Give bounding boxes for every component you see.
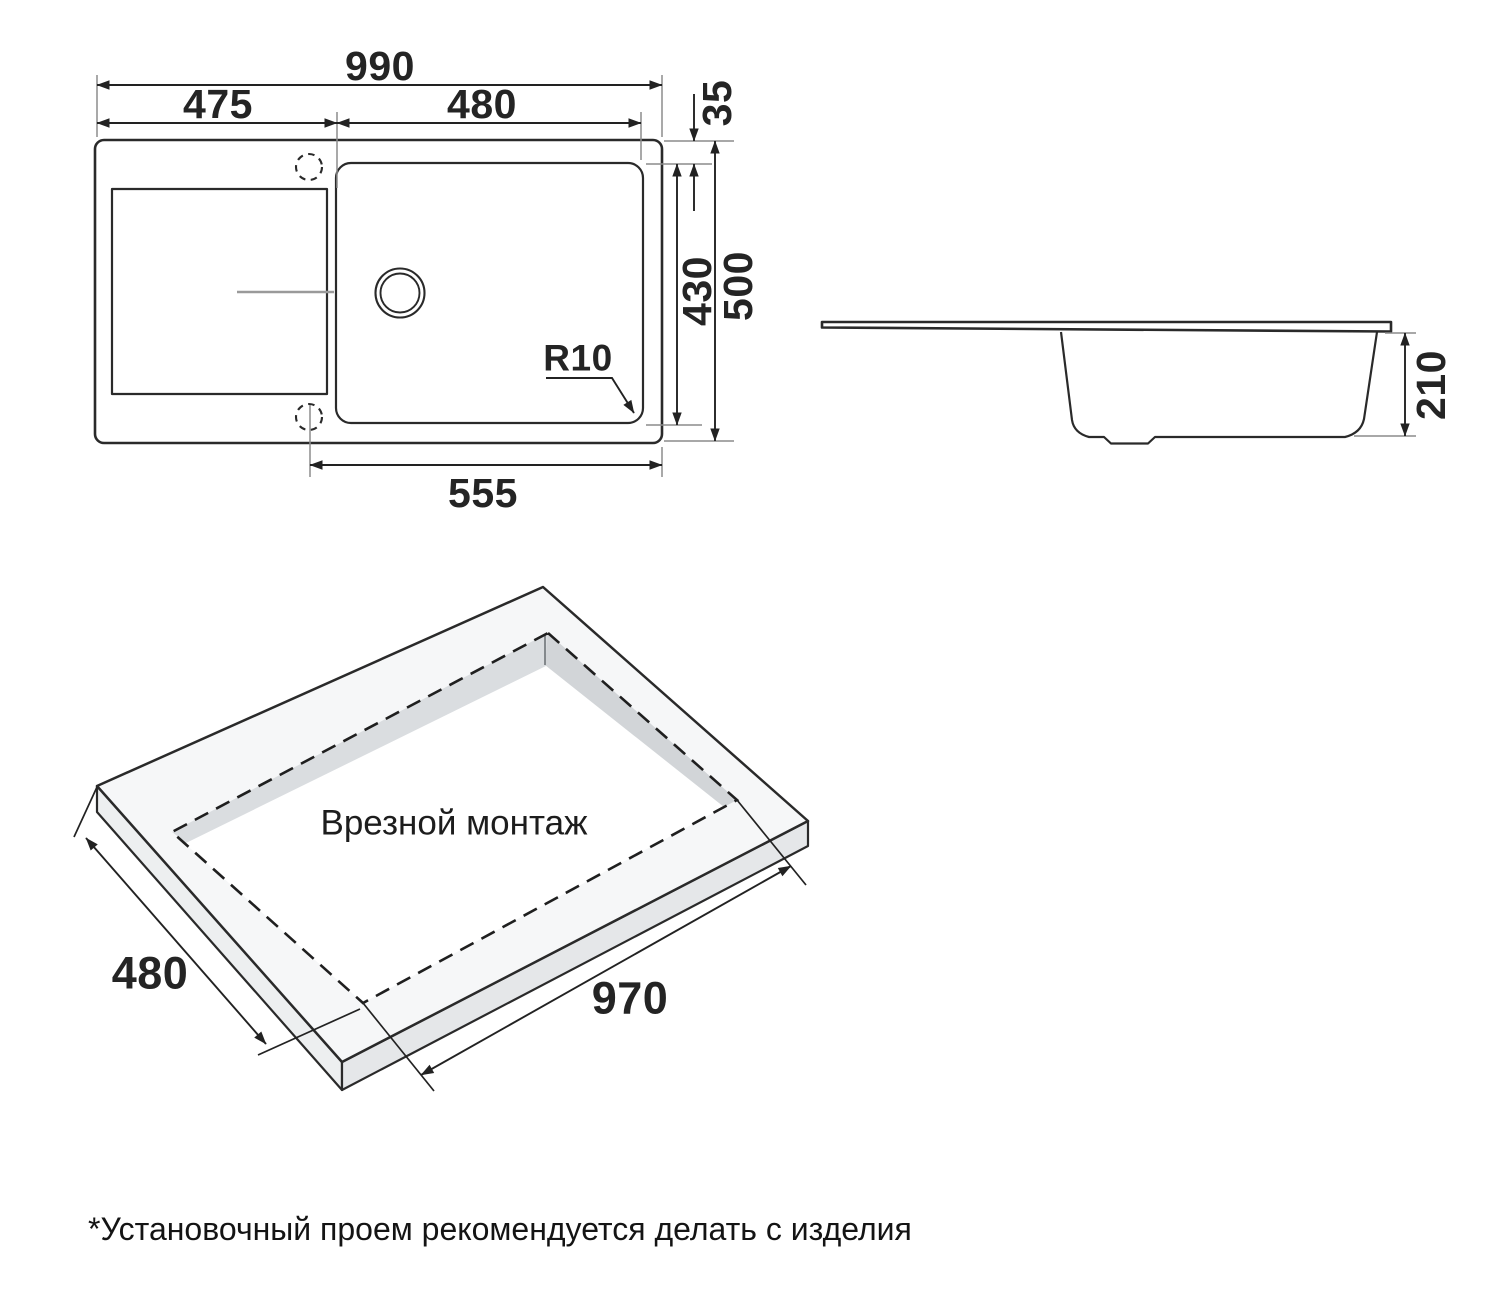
dim-cutout-width-label: 480: [112, 948, 189, 999]
dim-cutout-length-label: 970: [592, 973, 669, 1024]
dim-bowl-depth-label: 430: [674, 256, 720, 326]
mounting-type-caption: Врезной монтаж: [321, 804, 589, 843]
dim-bowl-width-label: 480: [447, 81, 517, 127]
dim-drainer-width-label: 475: [183, 81, 253, 127]
sink-dimension-drawing-page: 990 475 480 35 430: [0, 0, 1496, 1294]
dim-bottom-span-label: 555: [448, 470, 518, 516]
dim-overall-width-label: 990: [345, 43, 415, 89]
dim-bowl-height-label: 210: [1408, 350, 1454, 420]
side-deck-outline: [822, 322, 1391, 332]
footnote-text: *Установочный проем рекомендуется делать…: [88, 1211, 912, 1247]
sink-outline: [95, 140, 662, 443]
dim-rim-offset-label: 35: [694, 80, 740, 127]
side-bowl-outline: [1061, 332, 1377, 444]
dim-corner-radius-label: R10: [543, 338, 612, 379]
technical-drawing: 990 475 480 35 430: [0, 0, 1496, 1294]
top-view: 990 475 480 35 430: [95, 43, 761, 516]
dim-overall-depth-label: 500: [715, 251, 761, 321]
side-view: 210: [822, 322, 1454, 444]
iso-view: 480 970 Врезной монтаж: [74, 587, 808, 1091]
